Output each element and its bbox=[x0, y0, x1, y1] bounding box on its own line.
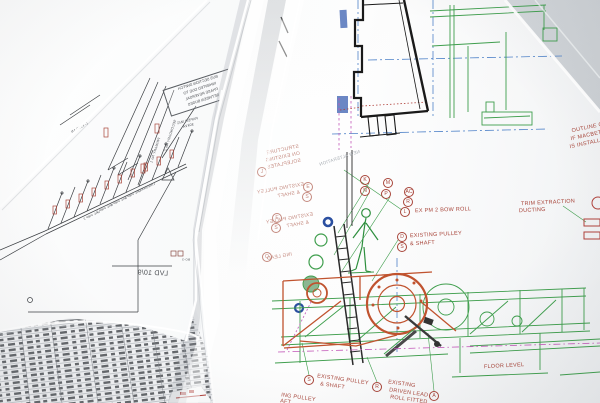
red-marked-sheet bbox=[168, 386, 213, 403]
photo-of-engineering-drawings: BUS SECTION SWITCH INHIBITED DUE TO PHAS… bbox=[0, 0, 600, 403]
